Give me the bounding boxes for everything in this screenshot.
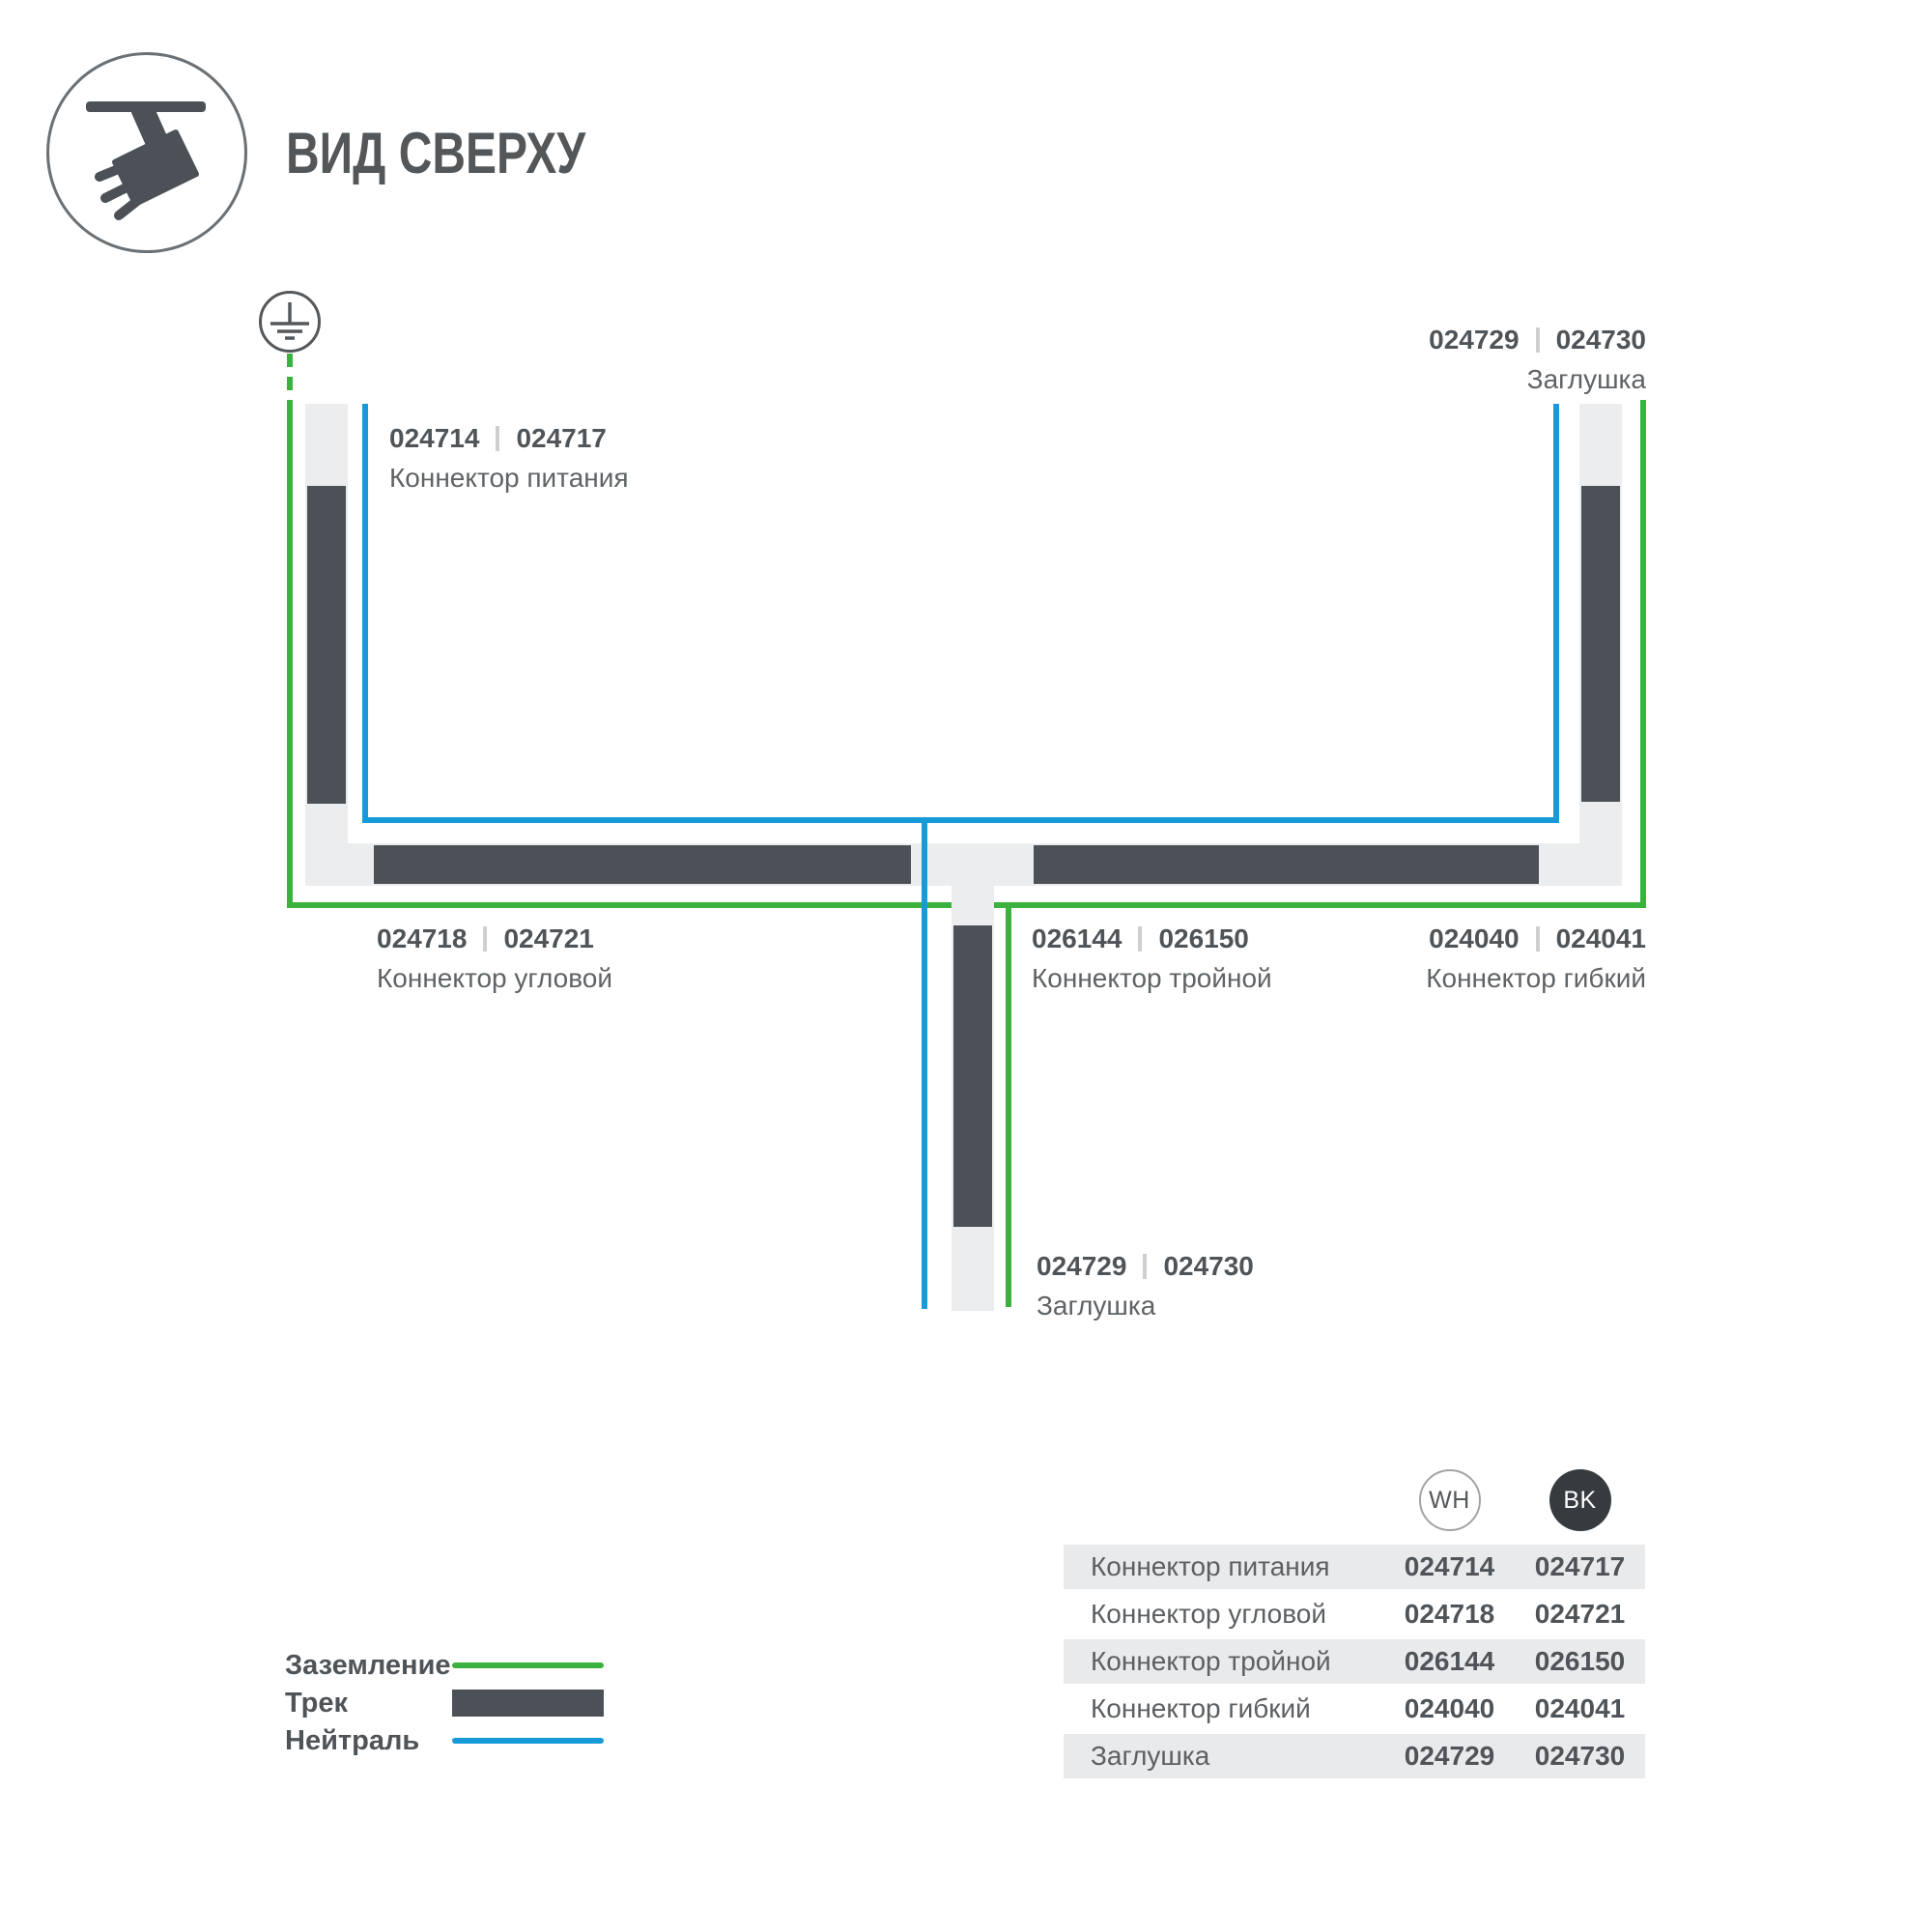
row-code-bk: 024717 <box>1515 1551 1645 1582</box>
label-flex-codes: 024040 024041 <box>1426 923 1646 955</box>
legend-track-label: Трек <box>285 1688 348 1719</box>
code-bk: 026150 <box>1158 923 1248 954</box>
row-code-bk: 024721 <box>1515 1599 1645 1630</box>
table-row: Коннектор угловой 024718 024721 <box>1064 1592 1645 1636</box>
code-wh: 024729 <box>1037 1251 1126 1282</box>
view-icon-badge <box>46 52 247 253</box>
row-code-bk: 024041 <box>1515 1693 1645 1724</box>
row-code-bk: 024730 <box>1515 1741 1645 1772</box>
parts-table-header: WH BK <box>1064 1467 1645 1545</box>
code-separator <box>483 926 487 952</box>
row-code-bk: 026150 <box>1515 1646 1645 1677</box>
track-segment-bottom-left <box>374 845 911 884</box>
legend-ground-label: Заземление <box>285 1650 451 1682</box>
label-power-name: Коннектор питания <box>389 464 629 493</box>
parts-table-body: Коннектор питания 024714 024717 Коннекто… <box>1064 1545 1645 1778</box>
table-row: Коннектор гибкий 024040 024041 <box>1064 1687 1645 1731</box>
page-title: ВИД СВЕРХУ <box>286 120 585 186</box>
ground-line-left <box>287 400 293 908</box>
neutral-line-drop <box>922 817 927 1309</box>
table-row: Коннектор питания 024714 024717 <box>1064 1545 1645 1589</box>
track-segment-drop <box>953 925 992 1227</box>
table-row: Заглушка 024729 024730 <box>1064 1734 1645 1778</box>
label-triple-name: Коннектор тройной <box>1032 964 1272 993</box>
label-corner-name: Коннектор угловой <box>377 964 612 993</box>
label-power-connector: 024714 024717 Коннектор питания <box>389 422 629 493</box>
track-segment-left <box>307 486 346 804</box>
row-name: Заглушка <box>1064 1741 1384 1772</box>
table-row: Коннектор тройной 026144 026150 <box>1064 1639 1645 1684</box>
code-wh: 024718 <box>377 923 467 954</box>
code-wh: 024040 <box>1429 923 1519 954</box>
bk-color-badge: BK <box>1549 1469 1611 1531</box>
code-separator <box>1143 1254 1147 1279</box>
code-separator <box>1536 327 1540 353</box>
row-code-wh: 024714 <box>1384 1551 1515 1582</box>
legend-item-track: Трек <box>285 1684 604 1722</box>
ground-line-dashed <box>287 354 293 402</box>
label-flex-connector: 024040 024041 Коннектор гибкий <box>1426 923 1646 993</box>
ground-line-drop <box>1006 902 1011 1307</box>
track-segment-bottom-right <box>1034 845 1539 884</box>
label-corner-connector: 024718 024721 Коннектор угловой <box>377 923 612 993</box>
label-endcap-top-name: Заглушка <box>1429 365 1646 394</box>
label-endcap-top-codes: 024729 024730 <box>1429 324 1646 356</box>
code-wh: 024729 <box>1429 325 1519 355</box>
label-endcap-bottom-codes: 024729 024730 <box>1037 1250 1254 1283</box>
legend-neutral-label: Нейтраль <box>285 1725 419 1757</box>
legend-item-neutral: Нейтраль <box>285 1721 604 1760</box>
wh-color-badge: WH <box>1419 1469 1481 1531</box>
code-separator <box>496 426 499 451</box>
label-endcap-top: 024729 024730 Заглушка <box>1429 324 1646 394</box>
row-code-wh: 024729 <box>1384 1741 1515 1772</box>
row-code-wh: 024718 <box>1384 1599 1515 1630</box>
row-code-wh: 024040 <box>1384 1693 1515 1724</box>
code-wh: 026144 <box>1032 923 1122 954</box>
legend-item-ground: Заземление <box>285 1646 604 1685</box>
label-flex-name: Коннектор гибкий <box>1426 964 1646 993</box>
ground-line-swatch <box>452 1662 604 1668</box>
code-bk: 024717 <box>516 423 606 454</box>
code-wh: 024714 <box>389 423 479 454</box>
code-separator <box>1536 926 1540 952</box>
label-triple-codes: 026144 026150 <box>1032 923 1272 955</box>
row-name: Коннектор угловой <box>1064 1599 1384 1630</box>
row-name: Коннектор гибкий <box>1064 1693 1384 1724</box>
row-code-wh: 026144 <box>1384 1646 1515 1677</box>
label-corner-codes: 024718 024721 <box>377 923 612 955</box>
neutral-line-left <box>362 404 368 823</box>
track-swatch <box>452 1690 604 1717</box>
code-bk: 024721 <box>503 923 593 954</box>
label-power-codes: 024714 024717 <box>389 422 629 455</box>
label-endcap-bottom: 024729 024730 Заглушка <box>1037 1250 1254 1321</box>
canvas: { "header": { "title": "ВИД СВЕРХУ" }, "… <box>0 0 1932 1932</box>
row-name: Коннектор тройной <box>1064 1646 1384 1677</box>
neutral-line-bottom <box>362 817 1559 823</box>
ground-symbol-icon <box>259 291 321 353</box>
code-bk: 024730 <box>1163 1251 1253 1282</box>
parts-table: WH BK Коннектор питания 024714 024717 Ко… <box>1064 1467 1645 1781</box>
ground-line-right <box>1640 400 1646 908</box>
spotlight-icon <box>49 55 244 250</box>
track-segment-right <box>1581 486 1620 802</box>
code-separator <box>1138 926 1142 952</box>
neutral-line-swatch <box>452 1738 604 1744</box>
row-name: Коннектор питания <box>1064 1551 1384 1582</box>
neutral-line-right <box>1553 404 1559 823</box>
label-endcap-bottom-name: Заглушка <box>1037 1292 1254 1321</box>
label-triple-connector: 026144 026150 Коннектор тройной <box>1032 923 1272 993</box>
code-bk: 024730 <box>1556 325 1646 355</box>
code-bk: 024041 <box>1556 923 1646 954</box>
